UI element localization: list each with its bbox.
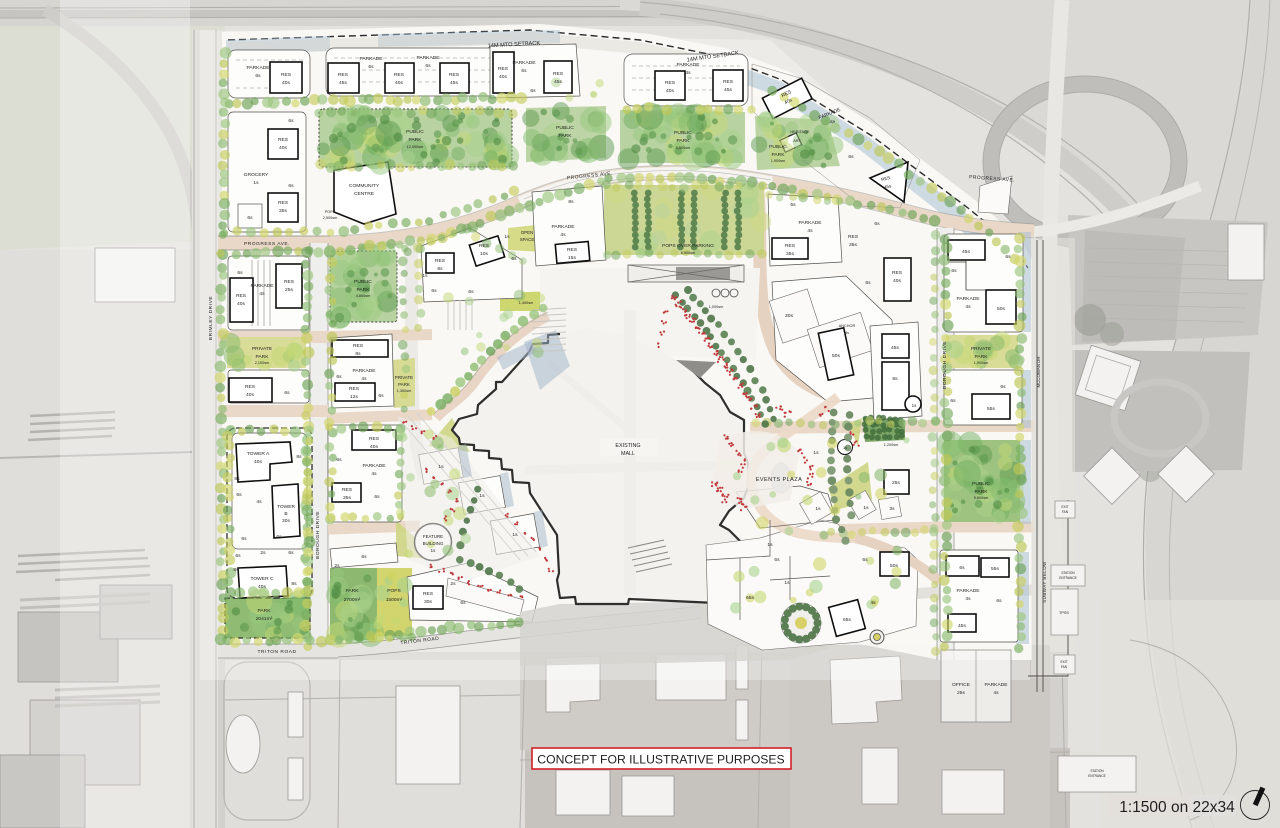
svg-text:40s: 40s bbox=[237, 301, 245, 307]
svg-text:12,000sm: 12,000sm bbox=[407, 145, 424, 149]
svg-text:PARK: PARK bbox=[357, 287, 371, 293]
svg-text:55s: 55s bbox=[991, 566, 999, 572]
svg-text:6s: 6s bbox=[425, 63, 431, 69]
svg-text:6s: 6s bbox=[255, 73, 261, 79]
svg-text:1,400sm: 1,400sm bbox=[519, 301, 534, 305]
svg-text:2700m²: 2700m² bbox=[344, 597, 361, 603]
svg-text:FAN: FAN bbox=[1061, 665, 1068, 669]
svg-text:40s: 40s bbox=[666, 88, 674, 94]
svg-text:PARK: PARK bbox=[677, 138, 691, 144]
svg-text:RES: RES bbox=[423, 591, 434, 597]
svg-text:CONCEPT FOR ILLUSTRATIVE PURPO: CONCEPT FOR ILLUSTRATIVE PURPOSES bbox=[537, 753, 784, 767]
svg-text:2s: 2s bbox=[450, 581, 456, 587]
svg-text:PARK: PARK bbox=[559, 133, 573, 139]
svg-text:OPEN: OPEN bbox=[521, 230, 533, 235]
svg-text:5,800sm: 5,800sm bbox=[974, 496, 989, 500]
svg-text:RES: RES bbox=[498, 66, 509, 72]
svg-text:6s: 6s bbox=[790, 202, 796, 208]
svg-text:4s: 4s bbox=[993, 690, 999, 696]
svg-text:50s: 50s bbox=[890, 563, 898, 569]
svg-text:8s: 8s bbox=[233, 567, 239, 573]
svg-text:4s: 4s bbox=[965, 596, 971, 602]
svg-text:6s: 6s bbox=[865, 280, 871, 286]
svg-text:TRITON ROAD: TRITON ROAD bbox=[257, 649, 296, 655]
svg-text:30s: 30s bbox=[785, 313, 793, 319]
svg-text:EXIT: EXIT bbox=[1061, 505, 1068, 509]
svg-text:6s: 6s bbox=[774, 557, 780, 563]
svg-text:4s: 4s bbox=[845, 331, 849, 335]
svg-text:35s: 35s bbox=[343, 495, 351, 501]
svg-text:ANCHOR: ANCHOR bbox=[839, 324, 856, 328]
svg-text:5,500sm: 5,500sm bbox=[676, 146, 691, 150]
svg-text:MALL: MALL bbox=[621, 451, 635, 457]
svg-text:12s: 12s bbox=[350, 394, 358, 400]
svg-text:6s: 6s bbox=[959, 565, 965, 571]
svg-text:6s: 6s bbox=[288, 183, 294, 189]
svg-text:15s: 15s bbox=[568, 255, 576, 261]
svg-text:40s: 40s bbox=[258, 584, 266, 590]
svg-text:HERITAGE: HERITAGE bbox=[790, 130, 810, 134]
svg-text:EXISTING: EXISTING bbox=[615, 443, 640, 449]
svg-text:6s: 6s bbox=[521, 68, 527, 74]
svg-text:PARKADE: PARKADE bbox=[352, 368, 376, 374]
svg-text:1s: 1s bbox=[479, 493, 485, 499]
svg-text:40s: 40s bbox=[282, 80, 290, 86]
svg-text:8s: 8s bbox=[296, 454, 302, 460]
svg-text:65s: 65s bbox=[746, 595, 754, 601]
svg-text:1500m²: 1500m² bbox=[386, 597, 403, 603]
svg-text:RES: RES bbox=[449, 72, 460, 78]
svg-text:4s: 4s bbox=[361, 376, 367, 382]
svg-text:40s: 40s bbox=[893, 278, 901, 284]
svg-text:4s: 4s bbox=[870, 600, 876, 606]
svg-text:RES: RES bbox=[892, 270, 903, 276]
svg-text:6s: 6s bbox=[236, 492, 242, 498]
svg-text:PARKADE: PARKADE bbox=[984, 682, 1008, 688]
svg-text:6s: 6s bbox=[874, 221, 880, 227]
svg-text:RES: RES bbox=[245, 384, 256, 390]
svg-text:1s: 1s bbox=[912, 403, 917, 408]
svg-text:8s: 8s bbox=[355, 351, 361, 357]
svg-text:4s: 4s bbox=[685, 70, 691, 76]
svg-text:1s: 1s bbox=[422, 273, 428, 279]
svg-text:RES: RES bbox=[236, 293, 247, 299]
svg-text:4s: 4s bbox=[807, 228, 813, 234]
svg-text:1s: 1s bbox=[512, 532, 518, 538]
svg-text:1s: 1s bbox=[784, 580, 790, 586]
svg-text:6,900sm: 6,900sm bbox=[681, 251, 696, 255]
svg-text:6s: 6s bbox=[374, 494, 380, 500]
svg-text:OFFICE: OFFICE bbox=[952, 682, 971, 688]
svg-text:40s: 40s bbox=[499, 74, 507, 80]
svg-text:RES: RES bbox=[353, 343, 364, 349]
svg-text:1s: 1s bbox=[813, 450, 819, 456]
svg-text:6s: 6s bbox=[368, 64, 374, 70]
svg-text:PARKADE: PARKADE bbox=[512, 60, 536, 66]
svg-text:8s: 8s bbox=[291, 581, 297, 587]
svg-text:6s: 6s bbox=[378, 393, 384, 399]
svg-text:6s: 6s bbox=[862, 557, 868, 563]
svg-text:RES: RES bbox=[281, 72, 292, 78]
svg-text:6s: 6s bbox=[996, 598, 1002, 604]
svg-text:PARK: PARK bbox=[975, 489, 989, 495]
svg-text:BUILDING: BUILDING bbox=[423, 541, 444, 546]
svg-text:6s: 6s bbox=[276, 534, 282, 540]
svg-text:6s: 6s bbox=[336, 457, 342, 463]
svg-text:CENTRE: CENTRE bbox=[354, 191, 375, 197]
svg-text:FEATURE: FEATURE bbox=[423, 534, 443, 539]
svg-text:50s: 50s bbox=[997, 306, 1005, 312]
svg-text:2041m²: 2041m² bbox=[256, 616, 273, 622]
svg-text:1s: 1s bbox=[815, 506, 821, 512]
svg-text:ENTRANCE: ENTRANCE bbox=[1088, 774, 1106, 778]
svg-text:6s: 6s bbox=[247, 215, 253, 221]
svg-text:35s: 35s bbox=[849, 242, 857, 248]
svg-text:MCCOWAN DR: MCCOWAN DR bbox=[1036, 356, 1041, 387]
svg-text:RES: RES bbox=[435, 258, 446, 264]
svg-text:PUBLIC: PUBLIC bbox=[354, 279, 372, 285]
svg-text:PARKADE: PARKADE bbox=[362, 463, 386, 469]
svg-text:25s: 25s bbox=[285, 287, 293, 293]
svg-text:ENTRANCE: ENTRANCE bbox=[1059, 576, 1077, 580]
svg-text:EVENTS PLAZA: EVENTS PLAZA bbox=[756, 477, 802, 483]
svg-text:45s: 45s bbox=[891, 345, 899, 351]
svg-text:2,500sm: 2,500sm bbox=[323, 216, 338, 220]
svg-text:RES: RES bbox=[338, 72, 349, 78]
svg-text:8s: 8s bbox=[437, 266, 443, 272]
svg-text:RES: RES bbox=[369, 436, 380, 442]
svg-text:PUBLIC: PUBLIC bbox=[972, 481, 990, 487]
svg-text:10s: 10s bbox=[480, 251, 488, 257]
svg-text:8s: 8s bbox=[892, 376, 898, 382]
svg-text:RES: RES bbox=[278, 137, 289, 143]
svg-text:STATION: STATION bbox=[1090, 769, 1104, 773]
svg-text:2s: 2s bbox=[334, 563, 340, 569]
svg-text:1s: 1s bbox=[438, 464, 444, 470]
svg-text:45s: 45s bbox=[962, 249, 970, 255]
svg-text:PRIVATE: PRIVATE bbox=[971, 346, 992, 352]
svg-text:PARKADE: PARKADE bbox=[956, 296, 980, 302]
svg-text:PUBLIC: PUBLIC bbox=[406, 129, 424, 135]
svg-text:RES: RES bbox=[284, 279, 295, 285]
svg-text:PARKADE: PARKADE bbox=[956, 588, 980, 594]
svg-text:PRIVATE: PRIVATE bbox=[395, 375, 413, 380]
svg-text:25s: 25s bbox=[957, 690, 965, 696]
svg-text:1:1500 on 22x34: 1:1500 on 22x34 bbox=[1119, 799, 1235, 816]
svg-text:RES: RES bbox=[278, 200, 289, 206]
svg-text:4s: 4s bbox=[965, 304, 971, 310]
svg-text:40s: 40s bbox=[395, 80, 403, 86]
svg-text:1s: 1s bbox=[767, 542, 773, 548]
svg-text:GROCERY: GROCERY bbox=[244, 172, 269, 178]
svg-text:PUBLIC: PUBLIC bbox=[674, 130, 692, 136]
svg-text:6s: 6s bbox=[241, 536, 247, 542]
svg-text:1s: 1s bbox=[431, 548, 436, 553]
svg-text:PARK: PARK bbox=[346, 588, 360, 594]
svg-text:PARK: PARK bbox=[409, 137, 423, 143]
svg-text:6s: 6s bbox=[284, 390, 290, 396]
svg-text:6s: 6s bbox=[336, 374, 342, 380]
svg-text:RES: RES bbox=[553, 71, 564, 77]
svg-text:EXIT: EXIT bbox=[1060, 660, 1067, 664]
svg-text:PARKADE: PARKADE bbox=[359, 56, 383, 62]
svg-text:PARK: PARK bbox=[256, 354, 270, 360]
svg-text:B: B bbox=[284, 511, 287, 517]
svg-text:SUBWAY BELOW: SUBWAY BELOW bbox=[1042, 561, 1047, 603]
svg-text:40s: 40s bbox=[254, 459, 262, 465]
svg-text:45s: 45s bbox=[554, 79, 562, 85]
svg-text:40s: 40s bbox=[279, 145, 287, 151]
svg-text:6s: 6s bbox=[288, 550, 294, 556]
svg-text:45s: 45s bbox=[450, 80, 458, 86]
svg-text:4s: 4s bbox=[259, 291, 265, 297]
svg-text:6s: 6s bbox=[460, 600, 466, 606]
svg-text:RES: RES bbox=[479, 243, 490, 249]
svg-text:RES: RES bbox=[723, 79, 734, 85]
svg-text:1,200sm: 1,200sm bbox=[884, 443, 899, 447]
svg-text:1,900sm: 1,900sm bbox=[974, 361, 989, 365]
svg-text:8s: 8s bbox=[234, 476, 240, 482]
svg-text:PARKADE: PARKADE bbox=[416, 55, 440, 61]
svg-text:30s: 30s bbox=[424, 599, 432, 605]
svg-text:6s: 6s bbox=[431, 288, 437, 294]
svg-text:TOWER A: TOWER A bbox=[247, 451, 270, 457]
svg-text:PARKADE: PARKADE bbox=[551, 224, 575, 230]
svg-text:8s: 8s bbox=[568, 199, 574, 205]
svg-text:RES: RES bbox=[848, 234, 859, 240]
svg-text:4,800sm: 4,800sm bbox=[356, 294, 371, 298]
svg-text:6s: 6s bbox=[468, 289, 474, 295]
svg-text:TOWER C: TOWER C bbox=[250, 576, 273, 582]
svg-text:6s: 6s bbox=[530, 88, 536, 94]
svg-text:PARK: PARK bbox=[772, 152, 786, 158]
svg-text:PARK: PARK bbox=[975, 354, 989, 360]
svg-text:6s: 6s bbox=[1005, 254, 1011, 260]
svg-text:PROGRESS AVE.: PROGRESS AVE. bbox=[244, 241, 290, 247]
svg-text:RES: RES bbox=[342, 487, 353, 493]
svg-text:POPS OVER PARKING: POPS OVER PARKING bbox=[662, 243, 714, 249]
svg-text:STATION: STATION bbox=[1061, 571, 1075, 575]
svg-text:35s: 35s bbox=[279, 208, 287, 214]
svg-text:6s: 6s bbox=[1000, 384, 1006, 390]
svg-text:40s: 40s bbox=[246, 392, 254, 398]
svg-text:COMMUNITY: COMMUNITY bbox=[349, 183, 380, 189]
svg-text:SPACE: SPACE bbox=[520, 237, 535, 242]
svg-text:3s: 3s bbox=[889, 506, 895, 512]
svg-text:45s: 45s bbox=[339, 80, 347, 86]
svg-text:6s: 6s bbox=[237, 270, 243, 276]
svg-text:55s: 55s bbox=[987, 406, 995, 412]
svg-text:4s: 4s bbox=[256, 499, 262, 505]
svg-text:RES: RES bbox=[394, 72, 405, 78]
svg-text:6s: 6s bbox=[950, 398, 956, 404]
svg-text:PARKADE: PARKADE bbox=[676, 62, 700, 68]
svg-text:1,900sm: 1,900sm bbox=[771, 159, 786, 163]
svg-text:35s: 35s bbox=[786, 251, 794, 257]
svg-text:1s: 1s bbox=[253, 180, 259, 186]
svg-text:TPSS: TPSS bbox=[1059, 611, 1069, 615]
svg-text:1,000sm: 1,000sm bbox=[709, 305, 724, 309]
svg-text:PARK: PARK bbox=[258, 608, 272, 614]
svg-text:50s: 50s bbox=[832, 353, 840, 359]
svg-text:1,300sm: 1,300sm bbox=[397, 389, 412, 393]
svg-text:BRIMLEY DRIVE: BRIMLEY DRIVE bbox=[208, 296, 214, 340]
svg-text:6s: 6s bbox=[848, 154, 854, 160]
svg-text:BOROUGH DRIVE: BOROUGH DRIVE bbox=[942, 341, 948, 389]
svg-text:RES: RES bbox=[785, 243, 796, 249]
svg-text:25s: 25s bbox=[892, 480, 900, 486]
svg-text:6s: 6s bbox=[511, 256, 517, 262]
svg-text:ART: ART bbox=[793, 139, 801, 143]
svg-text:RES: RES bbox=[665, 80, 676, 86]
svg-text:45s: 45s bbox=[958, 623, 966, 629]
svg-text:PUBLIC: PUBLIC bbox=[769, 144, 787, 150]
svg-text:1s: 1s bbox=[504, 234, 510, 240]
svg-text:6s: 6s bbox=[235, 553, 241, 559]
svg-text:PARKADE: PARKADE bbox=[250, 283, 274, 289]
svg-text:PUBLIC: PUBLIC bbox=[556, 125, 574, 131]
svg-text:6s: 6s bbox=[951, 268, 957, 274]
svg-text:2,100sm: 2,100sm bbox=[255, 361, 270, 365]
svg-text:RES: RES bbox=[567, 247, 578, 253]
svg-text:PARKADE: PARKADE bbox=[798, 220, 822, 226]
svg-text:PARKADE: PARKADE bbox=[246, 65, 270, 71]
svg-text:6s: 6s bbox=[361, 554, 367, 560]
svg-text:FAN: FAN bbox=[1062, 510, 1069, 514]
svg-text:1s: 1s bbox=[843, 446, 847, 450]
svg-text:POPS: POPS bbox=[325, 210, 336, 214]
svg-text:30s: 30s bbox=[282, 518, 290, 524]
svg-text:4s: 4s bbox=[560, 232, 566, 238]
svg-text:PRIVATE: PRIVATE bbox=[252, 346, 273, 352]
svg-text:4s: 4s bbox=[371, 471, 377, 477]
svg-text:2s: 2s bbox=[260, 550, 266, 556]
svg-text:TOWER: TOWER bbox=[277, 504, 296, 510]
svg-text:40s: 40s bbox=[370, 444, 378, 450]
svg-text:POPS: POPS bbox=[387, 588, 401, 594]
svg-text:BOROUGH DRIVE: BOROUGH DRIVE bbox=[315, 511, 321, 559]
svg-text:1s: 1s bbox=[863, 505, 869, 511]
svg-text:PARK: PARK bbox=[398, 382, 410, 387]
svg-text:45s: 45s bbox=[724, 87, 732, 93]
svg-text:RES: RES bbox=[349, 386, 360, 392]
svg-text:6s: 6s bbox=[288, 118, 294, 124]
svg-text:65s: 65s bbox=[843, 617, 851, 623]
